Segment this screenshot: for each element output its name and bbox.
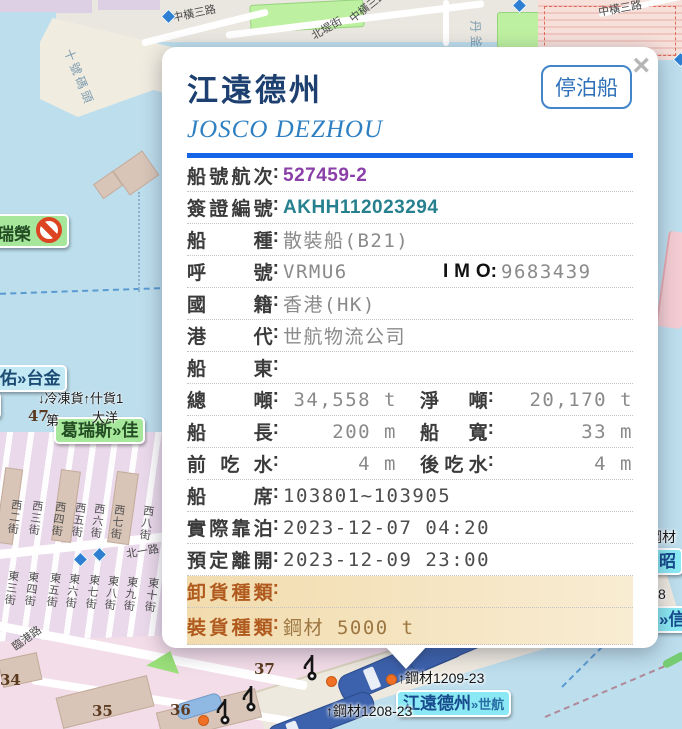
moored-ships-button[interactable]: 停泊船	[541, 65, 632, 109]
route-line	[0, 287, 160, 295]
detail-row: 實際靠泊:2023-12-07 04:20	[187, 512, 633, 544]
ship-details-table: 船號航次:527459-2簽證編號:AKHH112023294船種:散裝船(B2…	[187, 160, 633, 645]
badge-suffix: »世航	[471, 697, 504, 712]
ship-name-english: JOSCO DEZHOU	[187, 116, 633, 144]
divider-bar	[187, 153, 633, 158]
detail-row: 國籍:香港(HK)	[187, 288, 633, 320]
no-entry-icon	[36, 217, 62, 243]
berth-number: 36	[170, 701, 191, 719]
detail-row: 呼號:VRMU6I M O:9683439	[187, 256, 633, 288]
building-block	[98, 0, 160, 10]
route-line	[545, 657, 682, 717]
map-annotation: 大洋	[92, 407, 118, 426]
detail-row: 前吃水:4 m後吃水:4 m	[187, 448, 633, 480]
detail-row: 船東:	[187, 352, 633, 384]
map-annotation: 第	[46, 410, 59, 429]
map-viewport[interactable]: 中橫三路中橫三路中橫三路北堤街北一路臨港路十號碼頭丹釜川西二街西三街西四街西五街…	[0, 0, 682, 729]
crane-icon	[216, 696, 234, 726]
berth-number: 34	[0, 671, 21, 689]
crane-icon	[242, 683, 260, 713]
popup-tail	[384, 645, 428, 669]
map-badge[interactable]: 台	[0, 392, 1, 419]
detail-row: 船種:散裝船(B21)	[187, 224, 633, 256]
land-fragment	[655, 231, 682, 330]
detail-row: 港代:世航物流公司	[187, 320, 633, 352]
detail-row: 船席:103801~103905	[187, 480, 633, 512]
crane-icon	[303, 652, 321, 682]
detail-row: 預定離開:2023-12-09 23:00	[187, 544, 633, 576]
ship-info-popup: × 停泊船 江遠德州 JOSCO DEZHOU 船號航次:527459-2簽證編…	[162, 47, 658, 648]
cargo-label: ↑鋼材1209-23	[398, 668, 484, 688]
detail-row: 總噸:34,558 t淨噸:20,170 t	[187, 384, 633, 416]
detail-row: 卸貨種類:	[187, 576, 633, 608]
detail-row: 船號航次:527459-2	[187, 160, 633, 192]
ship-position-dot[interactable]	[326, 676, 337, 687]
building	[113, 150, 160, 195]
berth-number: 35	[92, 702, 113, 720]
detail-row: 裝貨種類:鋼材 5000 t	[187, 608, 633, 645]
cargo-label: 8	[658, 586, 666, 602]
ship-position-dot[interactable]	[386, 674, 397, 685]
berth-number: 37	[254, 660, 275, 678]
boundary-line	[138, 192, 140, 292]
close-icon[interactable]: ×	[632, 51, 650, 81]
map-annotation: ↓冷凍貨↑什貨1	[38, 388, 123, 407]
cargo-label: ↑鋼材1208-23	[326, 701, 412, 721]
detail-row: 簽證編號:AKHH112023294	[187, 192, 633, 224]
detail-row: 船長:200 m船寬:33 m	[187, 416, 633, 448]
map-badge[interactable]: 瑞榮	[0, 214, 69, 248]
map-badge[interactable]: 江遠德州»世航	[396, 690, 511, 717]
route-segment	[662, 651, 682, 669]
road	[443, 0, 449, 46]
ship-position-dot[interactable]	[198, 715, 209, 726]
